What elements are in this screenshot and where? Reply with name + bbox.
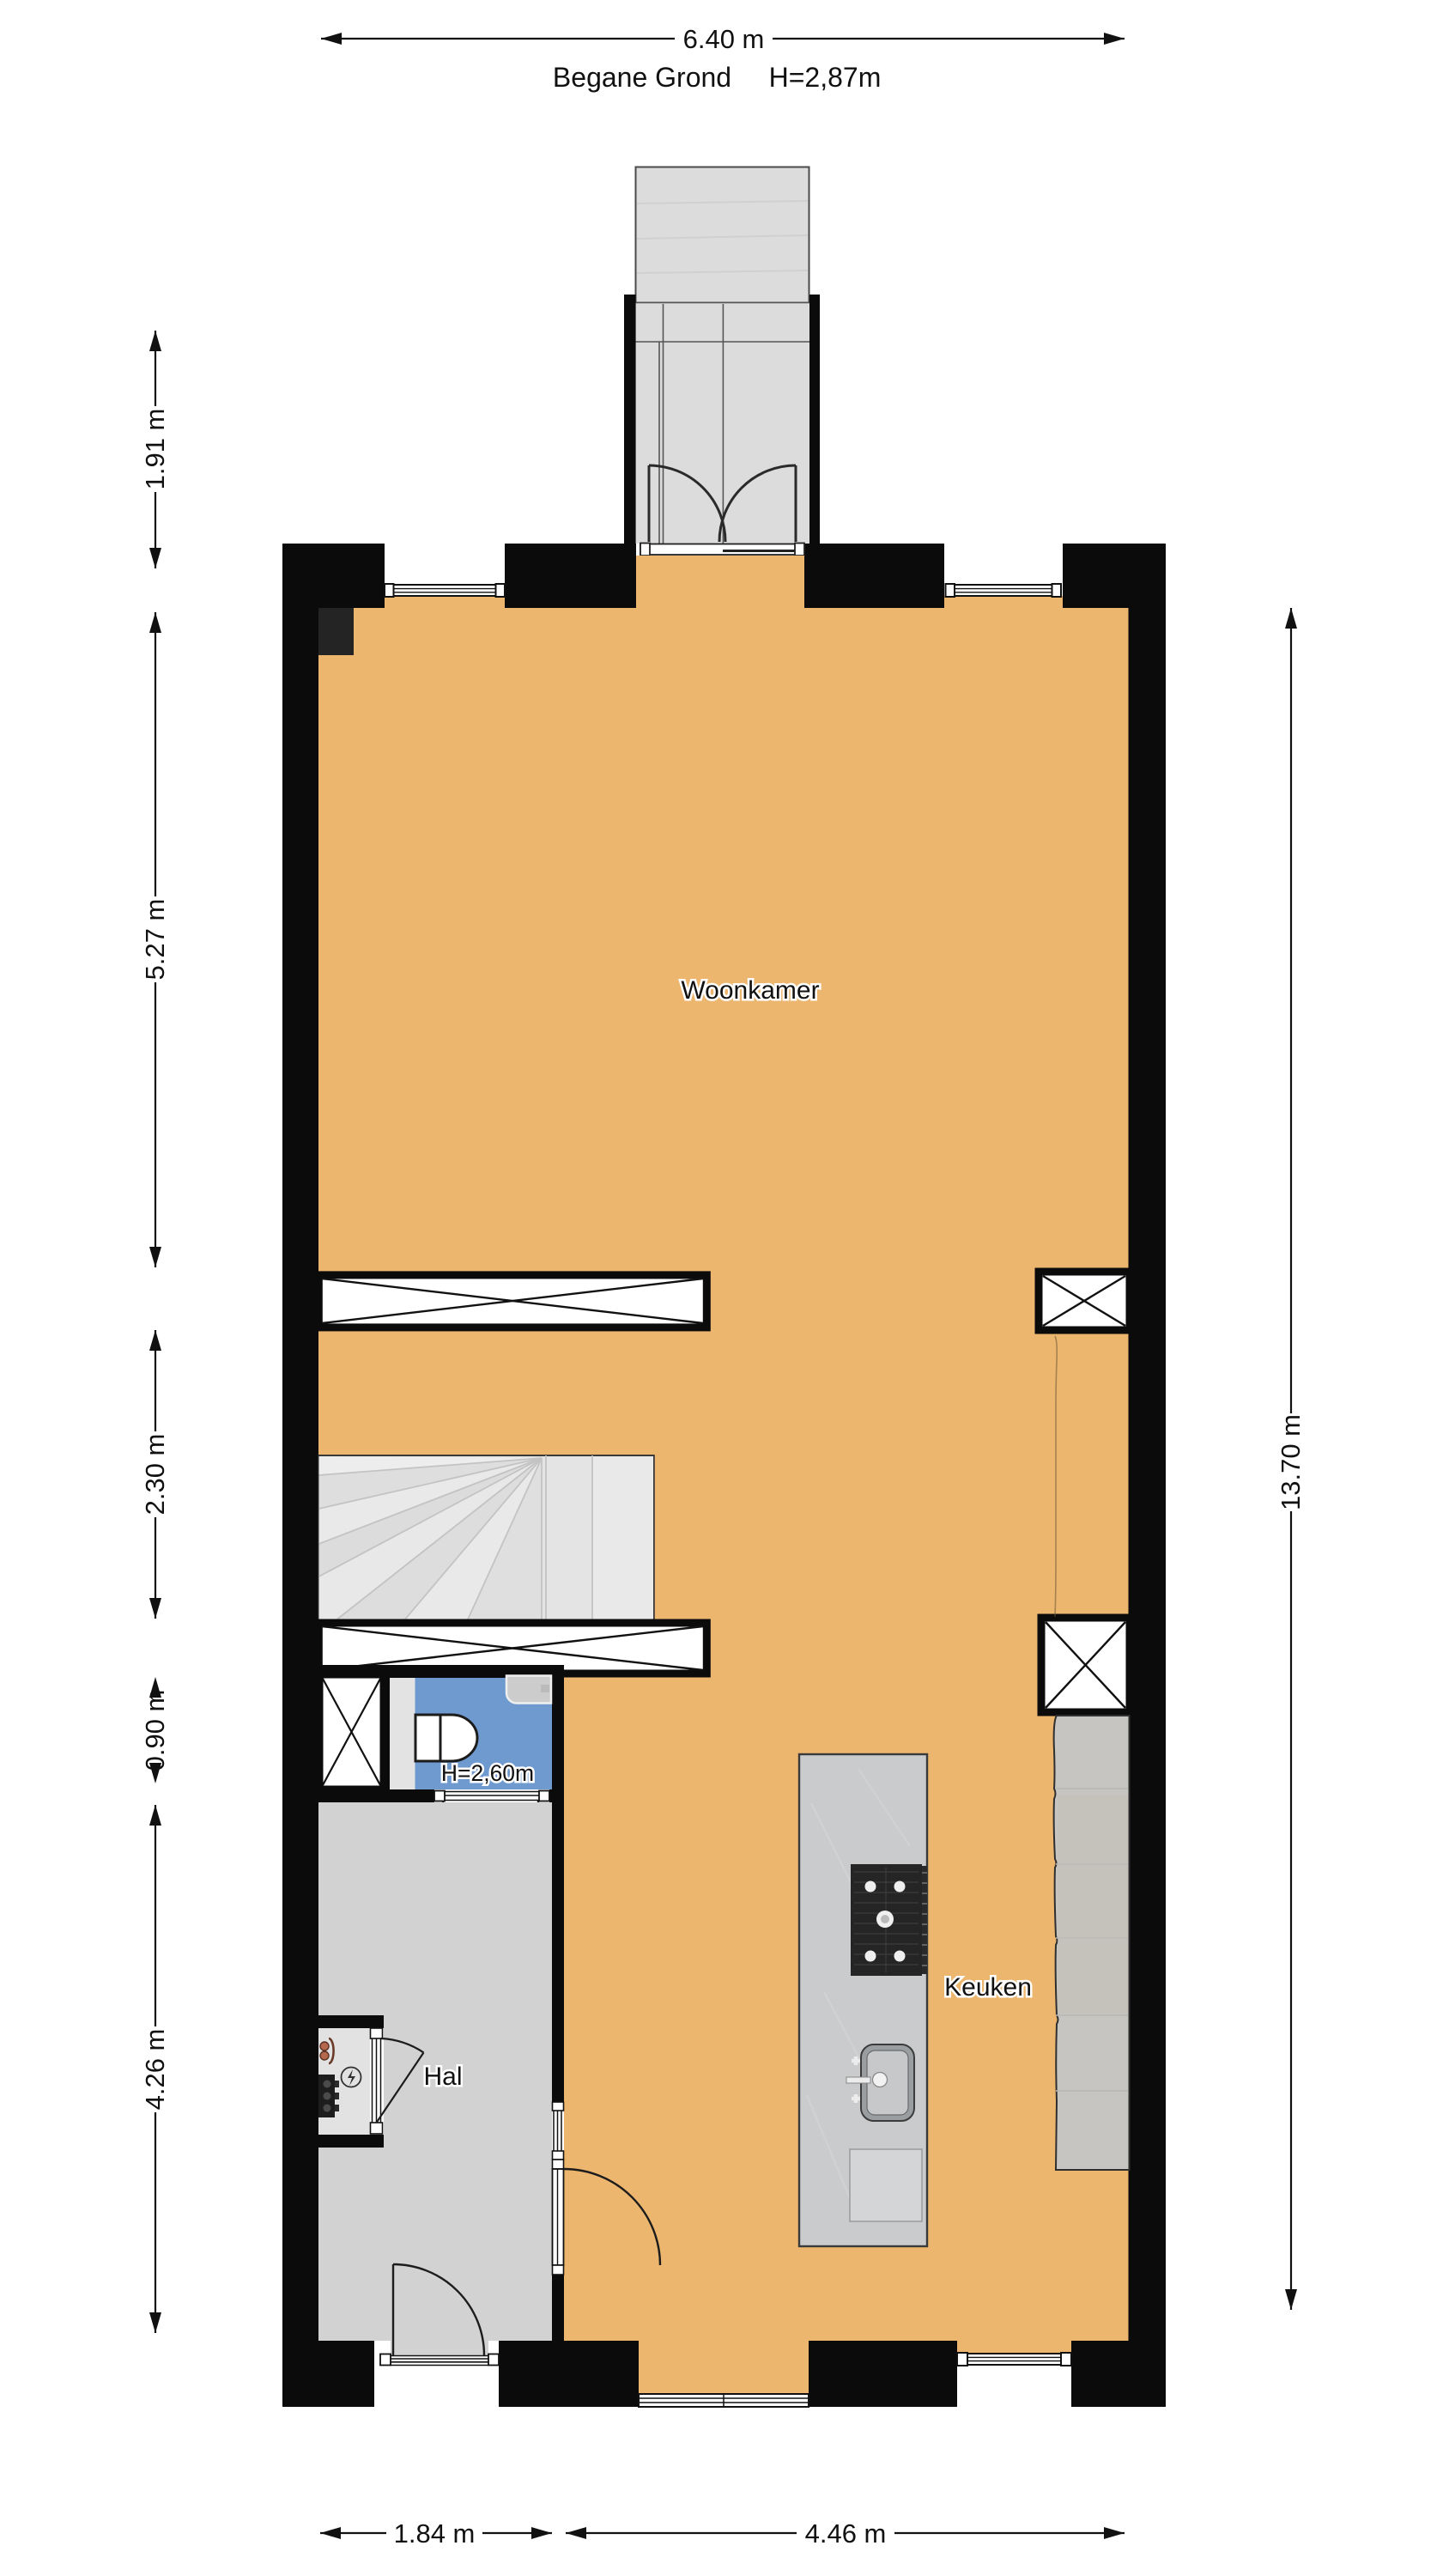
svg-text:13.70 m: 13.70 m bbox=[1276, 1414, 1306, 1510]
svg-text:H=2,87m: H=2,87m bbox=[769, 62, 882, 93]
svg-text:0.90 m: 0.90 m bbox=[140, 1690, 170, 1771]
svg-text:2.30 m: 2.30 m bbox=[140, 1434, 170, 1516]
svg-text:6.40 m: 6.40 m bbox=[683, 24, 765, 54]
svg-text:Woonkamer: Woonkamer bbox=[681, 976, 819, 1005]
svg-text:1.91 m: 1.91 m bbox=[140, 409, 170, 490]
svg-text:H=2,60m: H=2,60m bbox=[441, 1760, 534, 1786]
svg-text:Hal: Hal bbox=[423, 2063, 462, 2091]
svg-text:5.27 m: 5.27 m bbox=[140, 899, 170, 981]
svg-text:1.84 m: 1.84 m bbox=[394, 2518, 476, 2549]
svg-text:Keuken: Keuken bbox=[944, 1973, 1032, 2002]
svg-text:4.26 m: 4.26 m bbox=[140, 2029, 170, 2111]
svg-text:Begane Grond: Begane Grond bbox=[553, 62, 731, 93]
svg-text:4.46 m: 4.46 m bbox=[805, 2518, 887, 2549]
